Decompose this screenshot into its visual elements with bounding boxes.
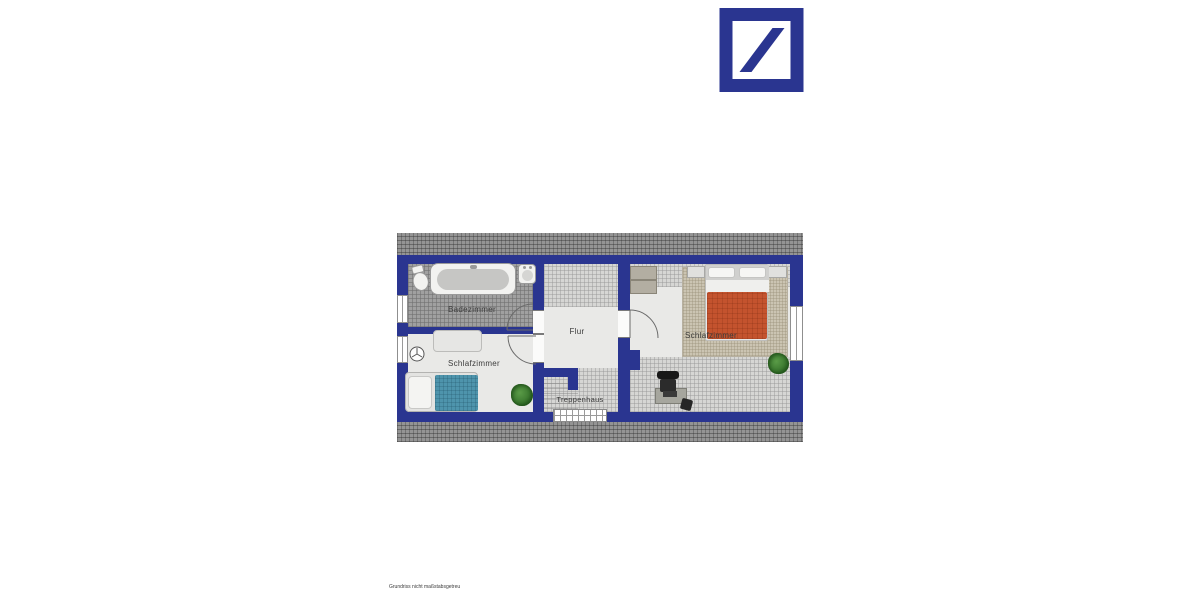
window-bedroom-left [397, 336, 408, 363]
bathtub-faucet [470, 265, 477, 269]
room-label-bedroom-left: Schlafzimmer [424, 358, 524, 369]
bedroom-right-slope-bottom [630, 357, 790, 412]
staircase-run [553, 409, 607, 422]
sink-tap-left [523, 266, 526, 269]
sink [518, 264, 536, 284]
office-chair-backrest [657, 371, 679, 379]
plant-bedroom-right [768, 353, 789, 374]
room-label-hallway: Flur [547, 326, 607, 337]
wall-hallway-right-upper [618, 264, 630, 310]
staircase-wall-top [535, 368, 568, 377]
sink-tap-right [529, 266, 532, 269]
bed-single [405, 372, 478, 412]
bathtub [430, 263, 516, 295]
plant-bedroom-left [511, 384, 533, 406]
bed-single-blanket [435, 375, 478, 411]
disclaimer-text: Grundriss nicht maßstabsgetreu [389, 584, 479, 590]
roof-hatch-bottom [397, 420, 803, 442]
staircase-wall-right [568, 368, 578, 390]
sideboard [433, 330, 482, 352]
door-opening-bathroom [533, 310, 544, 334]
bathtub-basin [437, 269, 509, 290]
bed-double-pillow-right [739, 267, 766, 278]
door-opening-bedroom-right [618, 310, 630, 338]
room-label-staircase: Treppenhaus [535, 394, 625, 405]
roof-hatch-top [397, 233, 803, 257]
ceiling-fan-icon [409, 346, 425, 362]
room-label-bathroom: Badezimmer [422, 304, 522, 315]
room-label-bedroom-right: Schlafzimmer [661, 330, 761, 341]
window-bedroom-right [790, 306, 803, 361]
bed-single-pillow [408, 376, 432, 409]
bed-double-sheet [706, 280, 769, 292]
toilet-bowl [411, 270, 431, 292]
wall-notch-bedroom-right [628, 350, 640, 370]
floorplan: Badezimmer Schlafzimmer Flur Treppenhaus… [397, 233, 803, 442]
wardrobe [630, 266, 657, 294]
bed-double-pillow-left [708, 267, 735, 278]
nightstand-right [768, 266, 787, 278]
nightstand-left [687, 266, 705, 278]
hallway-slope-hatch [544, 264, 618, 307]
keyboard [663, 391, 677, 397]
deutsche-bank-logo [718, 8, 805, 92]
deutsche-bank-logo-icon [718, 8, 805, 92]
sink-basin [522, 270, 533, 281]
door-opening-bedroom-left [533, 334, 544, 363]
window-bathroom [397, 295, 408, 323]
